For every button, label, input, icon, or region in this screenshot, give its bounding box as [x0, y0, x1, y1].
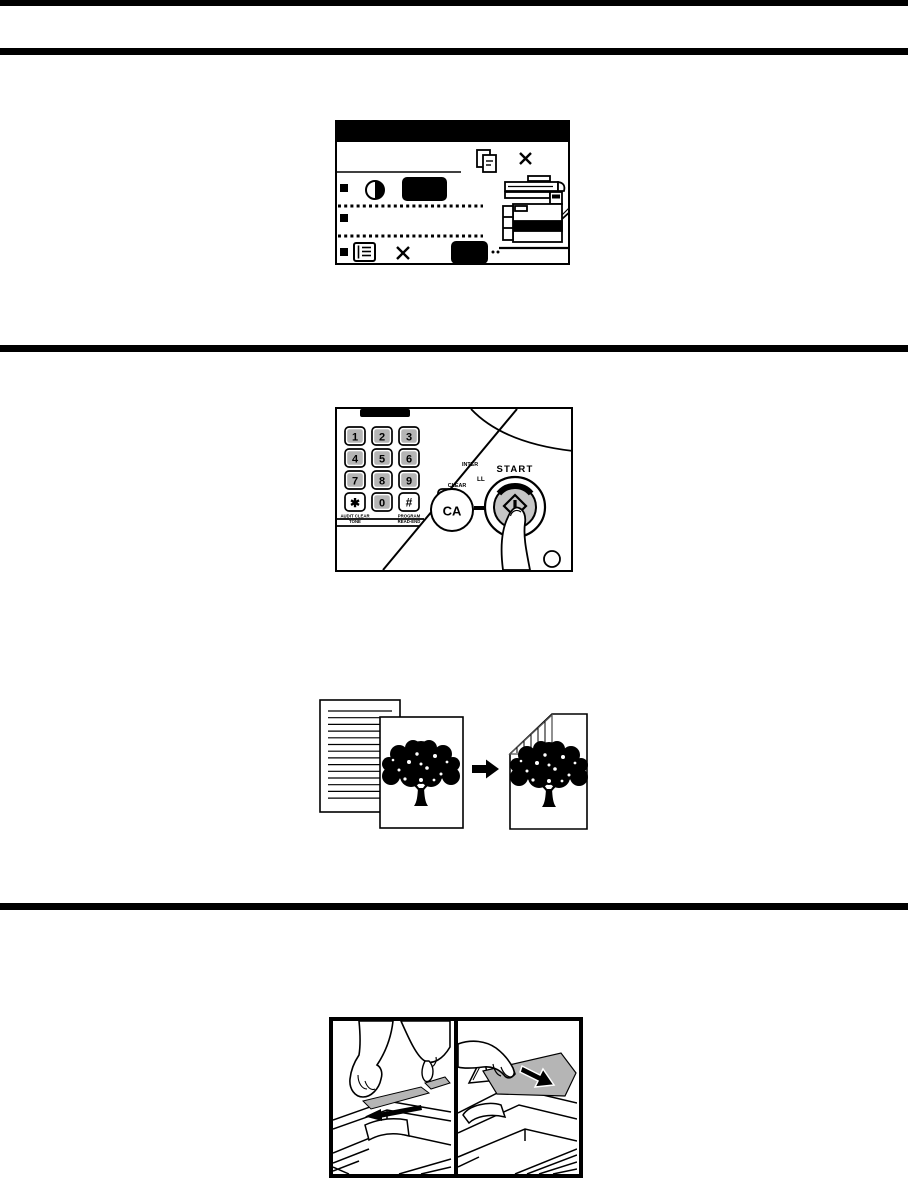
selected-setting-block	[451, 241, 488, 264]
key-7: 7	[345, 471, 365, 489]
svg-text:8: 8	[379, 476, 385, 488]
svg-text:0: 0	[379, 498, 385, 510]
arrow-right-icon	[472, 760, 499, 779]
svg-text:2: 2	[379, 432, 385, 444]
svg-text:3: 3	[406, 432, 412, 444]
key-9: 9	[399, 471, 419, 489]
key-hash: #	[399, 493, 419, 511]
page-top-rule	[0, 0, 908, 6]
contrast-icon	[366, 181, 384, 199]
two-sided-copy-page	[510, 714, 588, 829]
interrupt-label-partial: INTER	[462, 462, 478, 468]
svg-text:1: 1	[352, 432, 358, 444]
read-end-label: READ-END	[398, 519, 421, 524]
key-6: 6	[399, 449, 419, 467]
display-edge	[360, 409, 410, 417]
program-label: PROGRAM	[398, 514, 421, 519]
svg-text:6: 6	[406, 454, 412, 466]
header-rule	[0, 48, 908, 55]
key-4: 4	[345, 449, 365, 467]
key-star: ✱	[345, 493, 365, 511]
svg-text:#: #	[406, 496, 413, 510]
lcd-title-bar	[337, 122, 568, 142]
copier-icon	[499, 176, 570, 248]
svg-text:7: 7	[352, 476, 358, 488]
panel-screw-circle	[544, 551, 560, 567]
clear-all-key: CA	[431, 489, 473, 531]
bullet-square	[340, 214, 348, 222]
photo-original-page	[380, 717, 463, 828]
keypad-figure: 1 2 3 4 5 6 7 8 9 ✱ 0 # AUDIT CLEAR TONE	[335, 407, 573, 577]
svg-text:CA: CA	[443, 504, 462, 519]
bullet-square	[340, 248, 348, 256]
feeder-photos-figure	[329, 1017, 583, 1178]
section-rule-1	[0, 345, 908, 352]
duplex-copy-figure	[318, 697, 590, 838]
svg-text:✱: ✱	[350, 496, 360, 510]
svg-text:5: 5	[379, 454, 385, 466]
audit-clear-label: AUDIT CLEAR	[340, 514, 370, 519]
svg-text:9: 9	[406, 476, 412, 488]
key-5: 5	[372, 449, 392, 467]
clear-all-label-partial: LL	[477, 476, 485, 483]
key-2: 2	[372, 427, 392, 445]
bullet-square	[340, 184, 348, 192]
svg-text:4: 4	[352, 454, 359, 466]
key-1: 1	[345, 427, 365, 445]
selected-setting-block	[402, 177, 447, 201]
key-8: 8	[372, 471, 392, 489]
lcd-display-figure	[335, 120, 570, 270]
section-rule-2	[0, 903, 908, 910]
key-3: 3	[399, 427, 419, 445]
manual-page: 1 2 3 4 5 6 7 8 9 ✱ 0 # AUDIT CLEAR TONE	[0, 0, 908, 1178]
tone-label: TONE	[349, 519, 361, 524]
key-0: 0	[372, 493, 392, 511]
start-label: START	[497, 464, 534, 475]
